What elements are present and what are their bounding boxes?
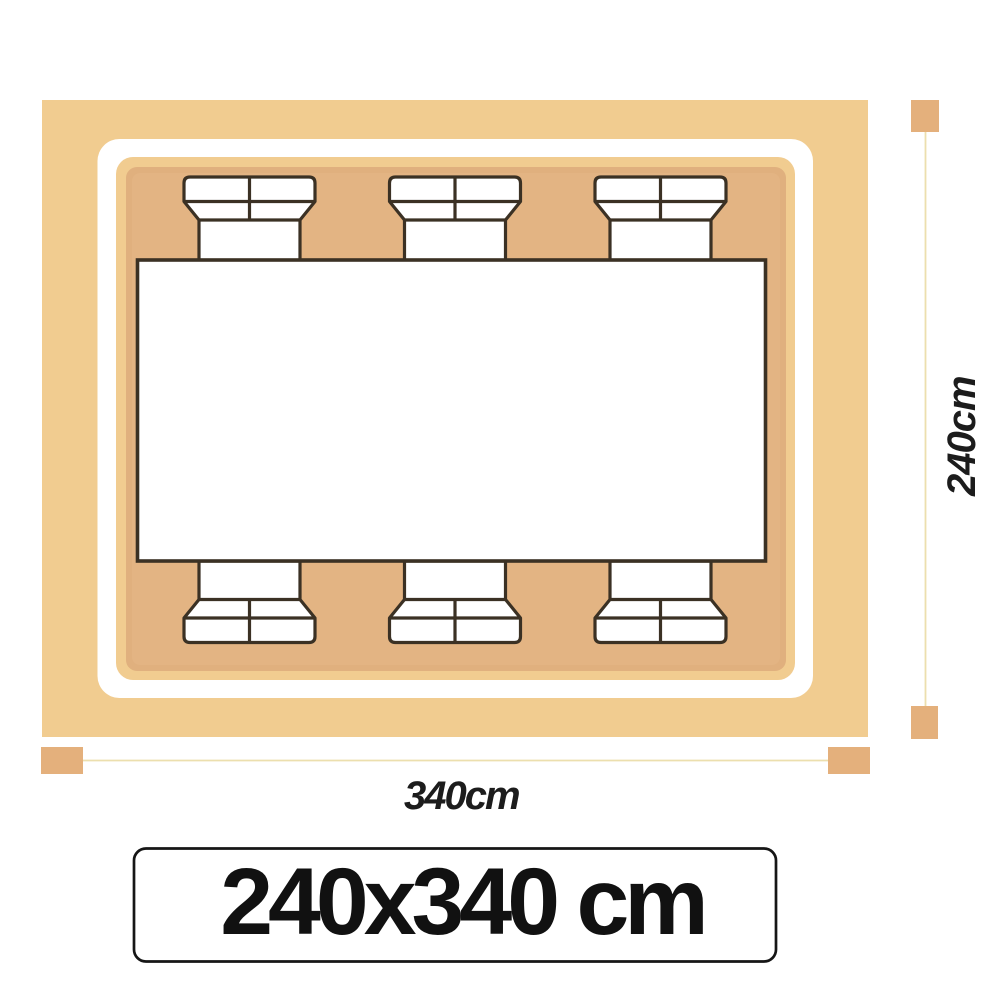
svg-text:340cm: 340cm <box>404 774 519 818</box>
svg-text:240x340 cm: 240x340 cm <box>220 849 704 955</box>
svg-text:240cm: 240cm <box>940 376 984 497</box>
